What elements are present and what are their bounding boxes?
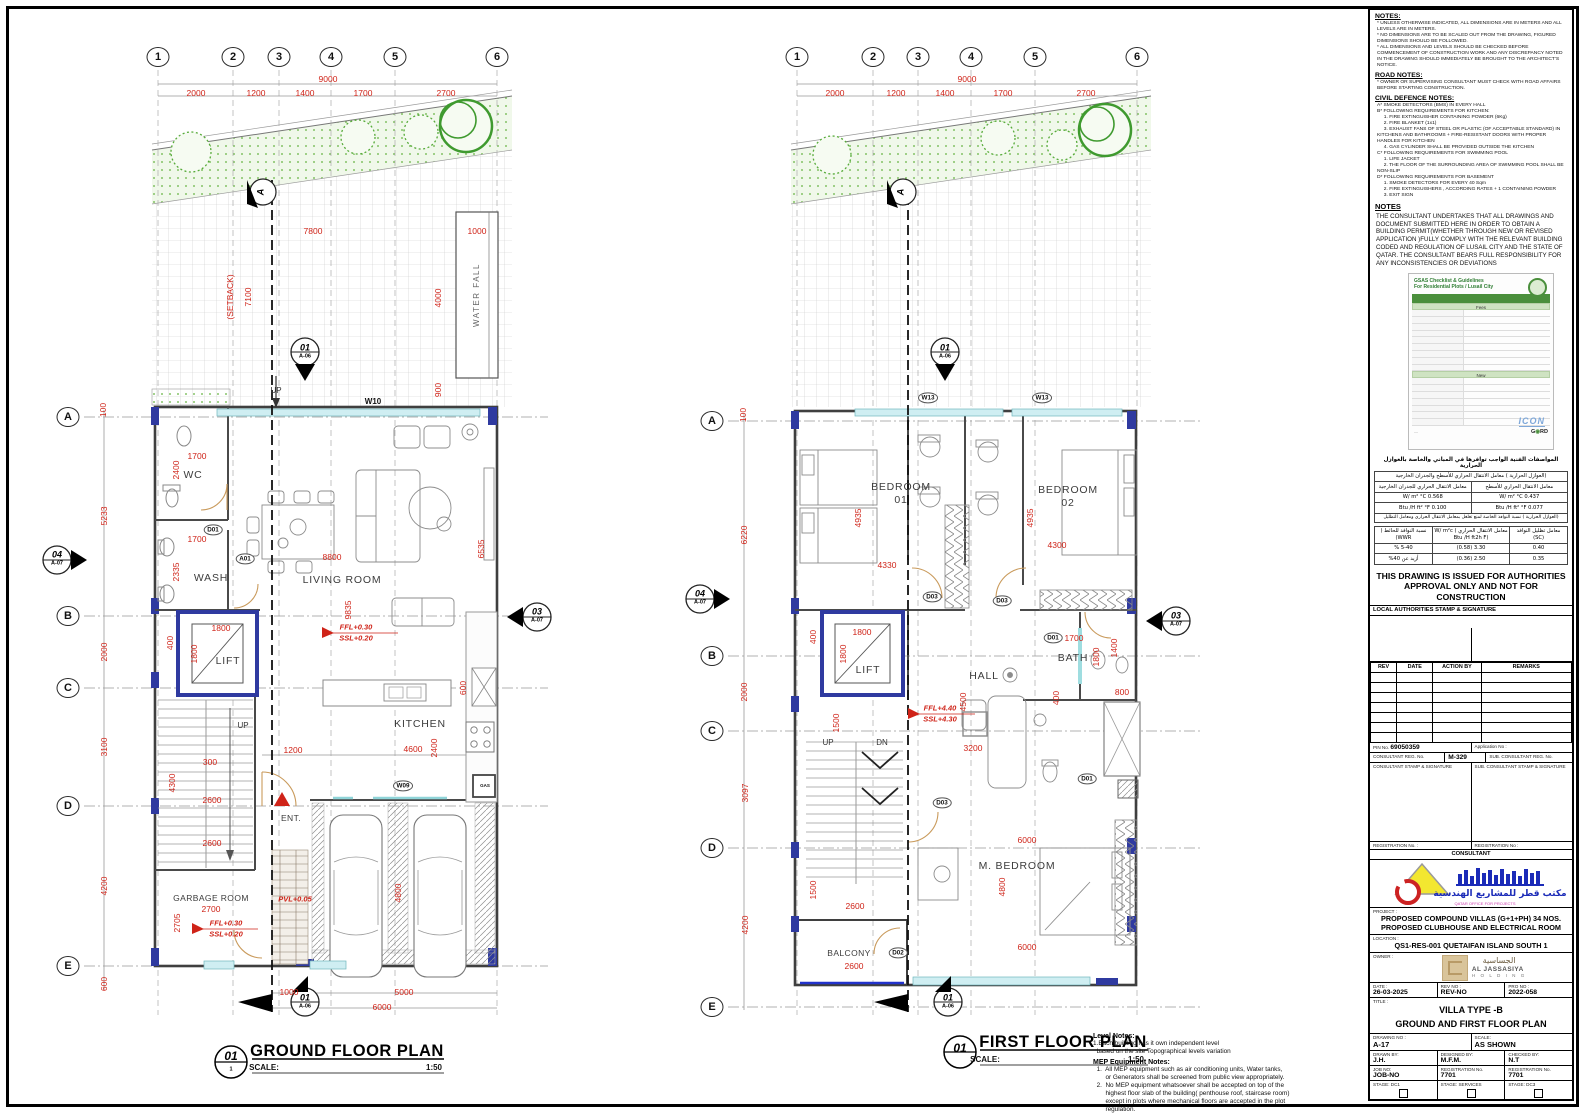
list-line: 3. EXIT SIGN [1377, 193, 1568, 199]
level-notes-heading: Level Notes: [1093, 1033, 1365, 1040]
stage-row: STAGE: DC1 STAGE: SERVICES STAGE: DC3 [1370, 1081, 1572, 1099]
plans-linework [0, 0, 1366, 1110]
consultant-logo: مكتب قطر للمشاريع الهندسية QATAR OFFICE … [1370, 860, 1572, 908]
title-block-panel: NOTES: * UNLESS OTHERWISE INDICATED, ALL… [1368, 8, 1574, 1101]
owner-block: OWNER : الجساسية AL JASSASIYA H O L D I … [1370, 953, 1572, 983]
list-line: highest floor slab of the building( pent… [1093, 1090, 1365, 1098]
pin-row: PIN No. 69050359 Application No : [1370, 743, 1572, 753]
cert-row [1412, 324, 1550, 331]
location-value: QS1-RES-001 QUETAIFAN ISLAND SOUTH 1 [1370, 941, 1572, 951]
gord-logo: G◉RD [1531, 429, 1548, 435]
cert-banner [1412, 294, 1550, 303]
t2-r2-u: 2.50 (0.36) [1432, 554, 1509, 565]
cert-row [1412, 392, 1550, 399]
icon-watermark: ICON [1519, 416, 1546, 427]
t2-r2-sc: 0.35 [1510, 554, 1568, 565]
t2-col-wwr: نسبة النوافذ للحائط ( WWR) [1375, 526, 1433, 543]
list-line: 3. EXHAUST FANS OF STEEL OR PLASTIC (OF … [1377, 127, 1568, 145]
rev-header-remarks: REMARKS [1481, 662, 1571, 672]
footer-notes: Level Notes: 1.Each building has it own … [1093, 1033, 1365, 1114]
road-notes-heading: ROAD NOTES: [1375, 72, 1567, 79]
t2-col-sc: معامل تظليل النوافذ (SC) [1510, 526, 1568, 543]
owner-holding: H O L D I N G [1472, 973, 1526, 978]
rev-row [1371, 722, 1572, 732]
t1-val-walls: 0.568 W/ m² °C [1375, 492, 1472, 503]
project-line-1: PROPOSED COMPOUND VILLAS (G+1+PH) 34 NOS… [1370, 914, 1572, 924]
notes-list: * UNLESS OTHERWISE INDICATED, ALL DIMENS… [1370, 21, 1572, 69]
cert-section-2: New [1412, 371, 1550, 378]
list-line: 1. All MEP equipment such as air conditi… [1093, 1066, 1365, 1074]
list-line: 2. FIRE EXTINGUISHERS , ACCORDING RATES … [1377, 187, 1568, 193]
owner-logo-icon [1442, 955, 1468, 981]
t2-r1-wwr: 5-40 % [1375, 543, 1433, 554]
revision-table: REVDATEACTION BYREMARKS [1370, 662, 1572, 743]
owner-name-english: AL JASSASIYA [1472, 966, 1526, 973]
consultant-reg-value: M-329 [1448, 754, 1467, 761]
rev-row [1371, 702, 1572, 712]
cert-row [1412, 344, 1550, 351]
job-no-value: JOB-NO [1373, 1072, 1399, 1079]
stage-1-checkbox[interactable] [1399, 1089, 1408, 1098]
t2-r2-wwr: أزيد عن 40% [1375, 554, 1433, 565]
cert-row [1412, 331, 1550, 338]
ground-floor-plan [43, 70, 551, 1078]
list-line: based on the site Topographical levels v… [1093, 1048, 1365, 1056]
list-line: * UNLESS OTHERWISE INDICATED, ALL DIMENS… [1377, 21, 1568, 33]
rev-row [1371, 712, 1572, 722]
list-line: * OWNER OR SUPERVISING CONSULTANT MUST C… [1377, 80, 1568, 92]
application-no-label: Application No : [1475, 744, 1507, 749]
pro-no-value: 2022-058 [1508, 989, 1537, 996]
rev-row [1371, 732, 1572, 742]
owner-logo: الجساسية AL JASSASIYA H O L D I N G [1442, 954, 1526, 981]
registration-row: REGISTRATION No. : REGISTRATION No : [1370, 842, 1572, 850]
local-authorities-stamp-area [1370, 616, 1572, 662]
stage-1-label: STAGE: DC1 [1373, 1082, 1400, 1087]
drawing-no-value: A-17 [1373, 1040, 1389, 1049]
sub-consultant-reg-label: SUB. CONSULTANT REG. No. [1489, 754, 1552, 759]
cert-row [1412, 399, 1550, 406]
checked-by-value: N.T [1508, 1057, 1519, 1064]
list-line: except in plots where mechanical floors … [1093, 1098, 1365, 1106]
rev-header-action-by: ACTION BY [1433, 662, 1481, 672]
owner-label: OWNER : [1370, 953, 1396, 982]
cert-rows-1 [1409, 310, 1553, 371]
t2-r1-sc: 0.40 [1510, 543, 1568, 554]
stage-3-label: STAGE: DC3 [1508, 1082, 1535, 1087]
designed-by-value: M.F.M. [1441, 1057, 1461, 1064]
drawing-no-row: DRAWING NO :A-17 SCALE:AS SHOWN [1370, 1034, 1572, 1051]
t1-btu-walls: 0.100 Btu /H ft² °F [1375, 503, 1472, 514]
t1-col-roof: معامل الانتقال الحراري للأسطح [1471, 482, 1568, 493]
thermal-title: المواصفات الفنية الواجب توافرها في المبا… [1372, 457, 1570, 469]
cert-row [1412, 337, 1550, 344]
owner-name-arabic: الجساسية [1472, 957, 1526, 966]
consultant-name-english: QATAR OFFICE FOR PROJECTS [1455, 901, 1516, 906]
rev-header-rev: REV [1371, 662, 1397, 672]
location-block: LOCATION : QS1-RES-001 QUETAIFAN ISLAND … [1370, 935, 1572, 953]
cert-row [1412, 365, 1550, 372]
consultant-undertaking: THE CONSULTANT UNDERTAKES THAT ALL DRAWI… [1376, 213, 1566, 269]
cert-row [1412, 406, 1550, 413]
consultant-name-arabic: مكتب قطر للمشاريع الهندسية [1433, 889, 1566, 899]
registration-label-2: REGISTRATION No : [1475, 843, 1519, 848]
notes2-heading: NOTES [1375, 202, 1567, 211]
t1-header: (العوازل الحرارية ) معامل الانتقال الحرا… [1375, 471, 1568, 482]
project-line-2: PROPOSED CLUBHOUSE AND ELECTRICAL ROOM [1370, 923, 1572, 933]
t2-note: (العوازل الحرارية ) نسبة النوافذ الخاصة … [1374, 514, 1568, 523]
rev-row [1371, 692, 1572, 702]
gsas-certificate: GSAS Checklist & Guidelines For Resident… [1370, 271, 1572, 454]
notes-heading: NOTES: [1375, 13, 1567, 20]
people-row: DRAWN BY:J.H. DESIGNED BY:M.F.M. CHECKED… [1370, 1051, 1572, 1066]
list-line: 2. THE FLOOR OF THE SURROUNDING AREA OF … [1377, 163, 1568, 175]
t1-col-walls: معامل الانتقال الحراري للجدران الخارجية [1375, 482, 1472, 493]
project-block: PROJECT : PROPOSED COMPOUND VILLAS (G+1+… [1370, 908, 1572, 936]
consultant-stamp-area [1370, 770, 1572, 842]
consultant-bar: CONSULTANT [1370, 850, 1572, 860]
cert-row [1412, 385, 1550, 392]
mep-notes: 1. All MEP equipment such as air conditi… [1093, 1066, 1365, 1114]
road-notes-list: * OWNER OR SUPERVISING CONSULTANT MUST C… [1370, 80, 1572, 92]
rev-row [1371, 672, 1572, 682]
cert-section-1: Fees [1412, 303, 1550, 310]
sub-consultant-stamp-label: SUB. CONSULTANT STAMP & SIGNATURE [1475, 764, 1566, 769]
list-line: * ALL DIMENSIONS AND LEVELS SHOULD BE CH… [1377, 45, 1568, 69]
level-notes: 1.Each building has it own independent l… [1093, 1040, 1365, 1056]
pin-value: 69050359 [1390, 744, 1419, 751]
cert-row [1412, 358, 1550, 365]
cert-row [1412, 351, 1550, 358]
list-line: 2. No MEP equipment whatsoever shall be … [1093, 1082, 1365, 1090]
t1-btu-roof: 0.077 Btu /H ft² °F [1471, 503, 1568, 514]
cert-row [1412, 310, 1550, 317]
rev-header-date: DATE [1397, 662, 1433, 672]
pin-label: PIN No. [1373, 745, 1389, 750]
t1-val-roof: 0.437 W/ m² °C [1471, 492, 1568, 503]
consultant-reg-row: CONSULTANT REG. No. M-329 SUB. CONSULTAN… [1370, 753, 1572, 763]
drawing-sheet: { "ground_plan": { "labels": [ {"t":"1",… [0, 0, 1582, 1110]
stage-3-checkbox[interactable] [1534, 1089, 1543, 1098]
registration-no-value-1: 7701 [1441, 1072, 1456, 1079]
mep-notes-heading: MEP Equipment Notes: [1093, 1059, 1365, 1066]
registration-no-value-2: 7701 [1508, 1072, 1523, 1079]
authorities-notice: THIS DRAWING IS ISSUED FOR AUTHORITIES A… [1370, 571, 1572, 603]
list-line: 1.Each building has it own independent l… [1093, 1040, 1365, 1048]
consultant-stamp-label: CONSULTANT STAMP & SIGNATURE [1373, 764, 1452, 769]
local-authorities-bar: LOCAL AUTHORITIES STAMP & SIGNATURE [1370, 605, 1572, 616]
list-line: regulation. [1093, 1106, 1365, 1114]
drawn-by-value: J.H. [1373, 1057, 1385, 1064]
scale-value: AS SHOWN [1475, 1040, 1516, 1049]
date-value: 26-03-2025 [1373, 989, 1408, 996]
civil-defence-list: A* SMOKE DETECTORS (BMS) IN EVERY HALLB*… [1370, 103, 1572, 199]
job-row: JOB NO:JOB-NO REGISTRATION No.7701 REGIS… [1370, 1066, 1572, 1081]
list-line: or Generators shall be screened from pub… [1093, 1074, 1365, 1082]
title-block: TITLE : VILLA TYPE -B GROUND AND FIRST F… [1370, 998, 1572, 1034]
registration-label-1: REGISTRATION No. : [1373, 843, 1418, 848]
date-row: DATE :26-03-2025 REV NO :REV-NO PRO NO :… [1370, 983, 1572, 998]
rev-row [1371, 682, 1572, 692]
civil-defence-heading: CIVIL DEFENCE NOTES: [1375, 95, 1567, 102]
stamp-headers: CONSULTANT STAMP & SIGNATURE SUB. CONSUL… [1370, 763, 1572, 770]
cert-row [1412, 317, 1550, 324]
stage-2-checkbox[interactable] [1467, 1089, 1476, 1098]
consultant-reg-label: CONSULTANT REG. No. [1373, 754, 1424, 759]
rev-no-value: REV-NO [1441, 989, 1467, 996]
cert-row [1412, 378, 1550, 385]
first-floor-plan [686, 70, 1238, 1068]
t2-col-u: معامل الانتقال الحراري W/ m²c ( Btu /H f… [1432, 526, 1509, 543]
sheet-title-1: VILLA TYPE -B [1370, 1004, 1572, 1018]
t2-r1-u: 3.30 (0.58) [1432, 543, 1509, 554]
thermal-insulation-tables: المواصفات الفنية الواجب توافرها في المبا… [1370, 454, 1572, 565]
stage-2-label: STAGE: SERVICES [1441, 1082, 1482, 1087]
list-line: * NO DIMENSIONS ARE TO BE SCALED OUT FRO… [1377, 33, 1568, 45]
sheet-title-2: GROUND AND FIRST FLOOR PLAN [1370, 1018, 1572, 1032]
